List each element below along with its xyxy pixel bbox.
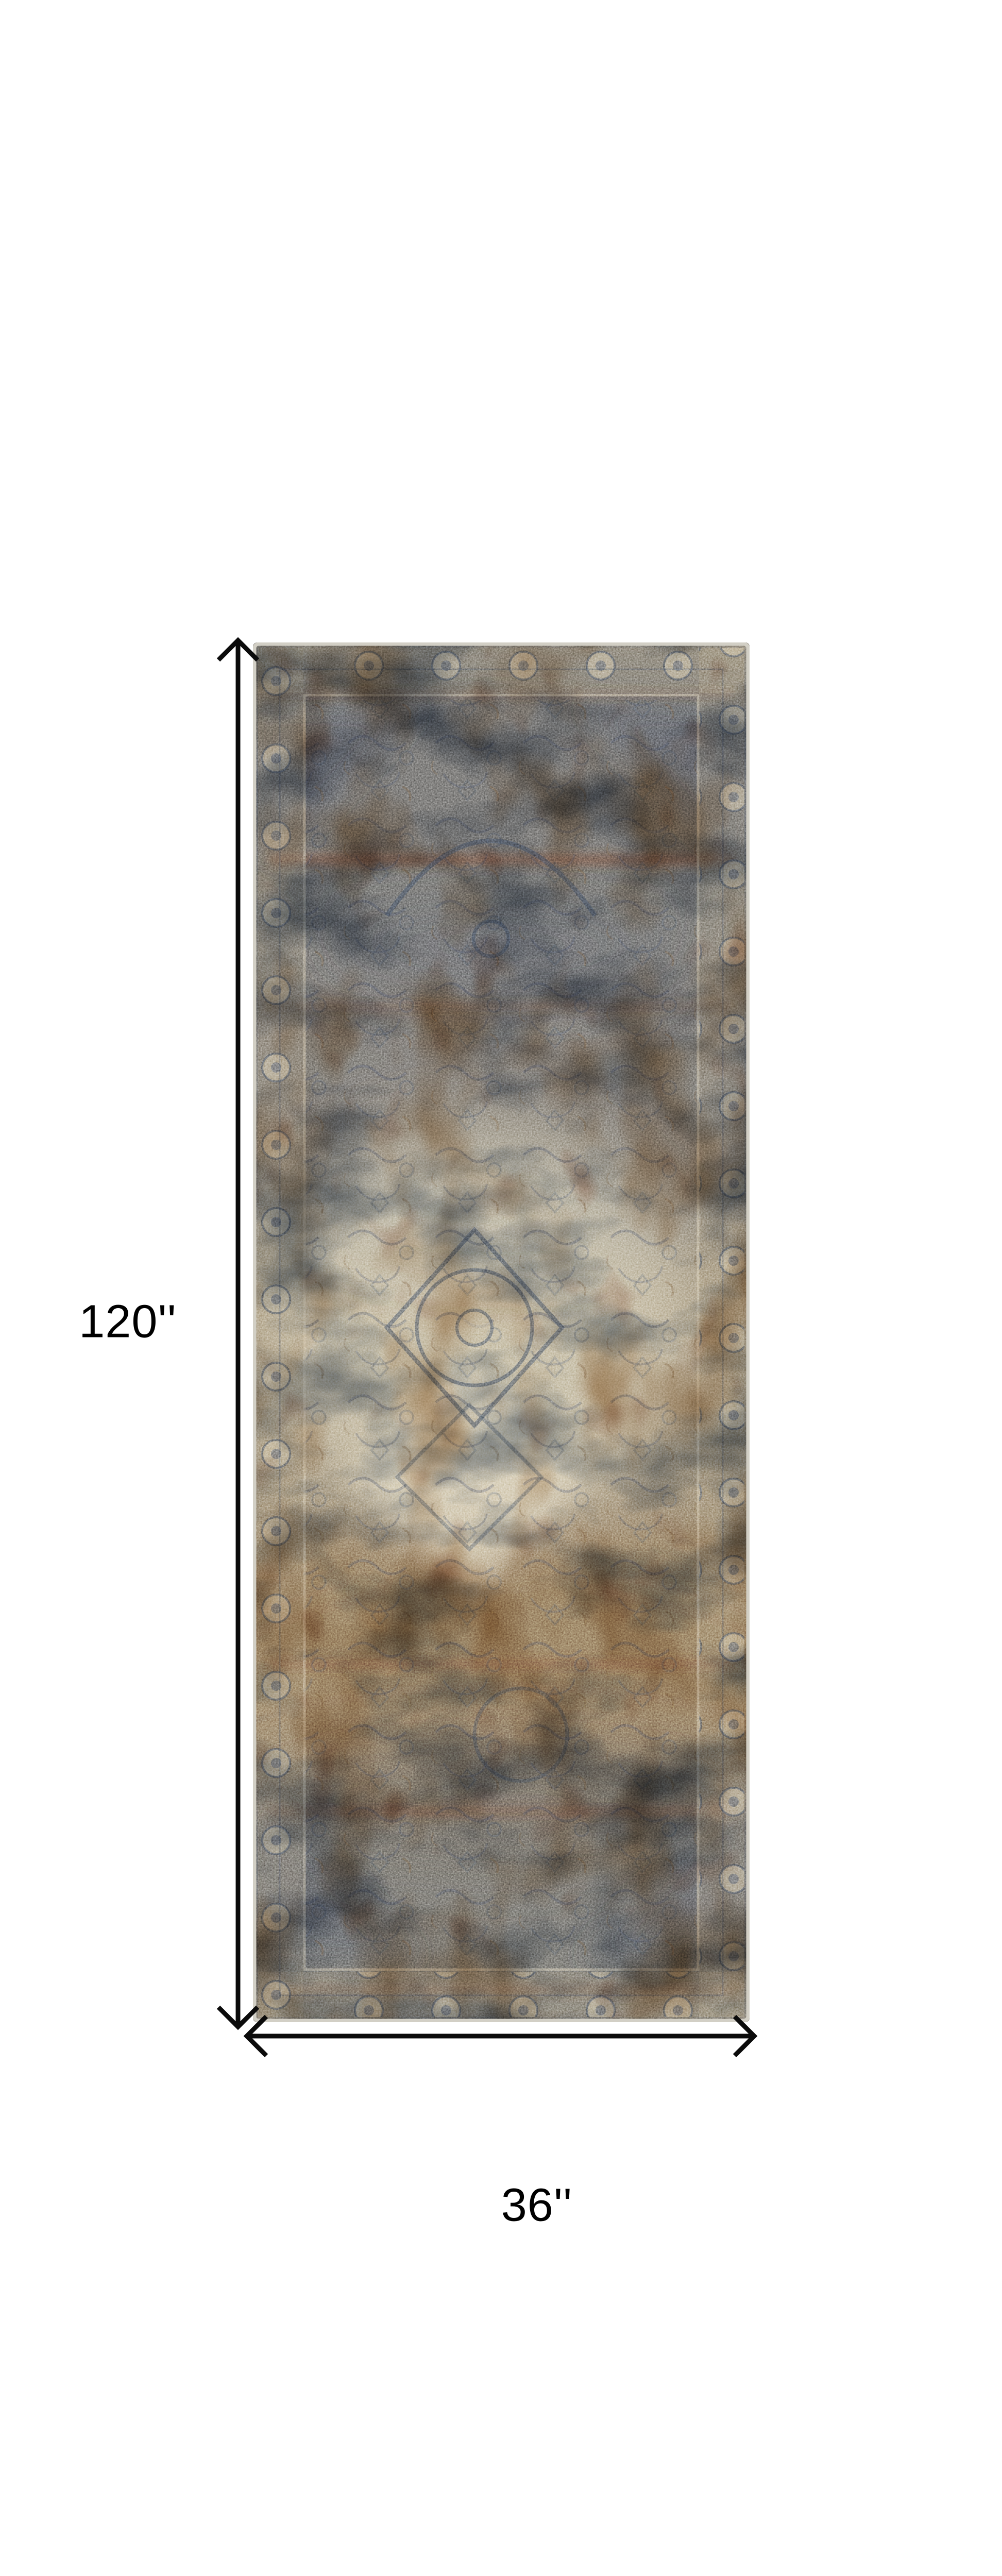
rug-field <box>253 642 750 2022</box>
product-dimension-diagram: 120'' 36'' <box>0 0 1002 2576</box>
rug-graphic <box>253 642 750 2022</box>
width-dimension-label: 36'' <box>501 2179 572 2232</box>
height-arrow <box>218 640 258 2027</box>
height-dimension-label: 120'' <box>79 1296 177 1349</box>
rug-image <box>253 642 750 2022</box>
width-arrow <box>247 2016 754 2056</box>
